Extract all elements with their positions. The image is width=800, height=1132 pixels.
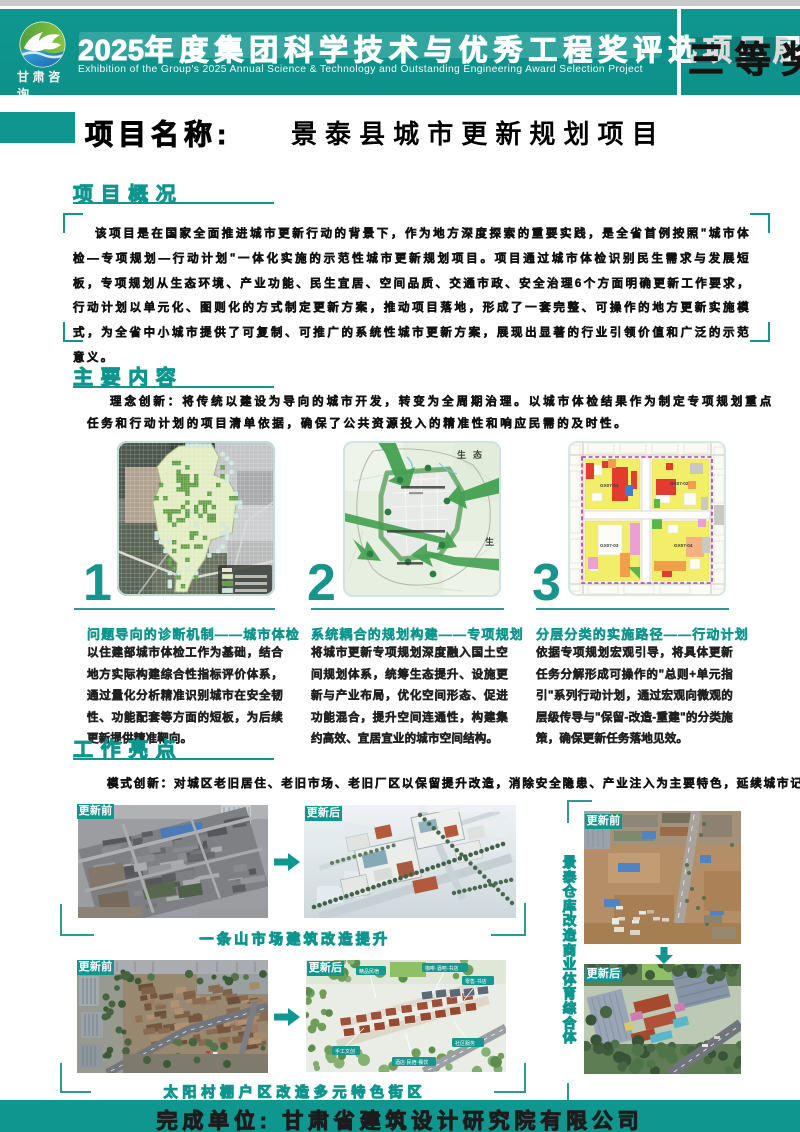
svg-text:咖啡·酒吧·书店: 咖啡·酒吧·书店 [425, 965, 458, 972]
svg-text:手工文创: 手工文创 [335, 1048, 355, 1055]
svg-text:酒店·民宿·餐饮: 酒店·民宿·餐饮 [395, 1059, 428, 1066]
svg-text:GX07-02: GX07-02 [670, 481, 689, 486]
svg-text:GX07-01: GX07-01 [600, 483, 619, 488]
svg-text:生态: 生态 [457, 449, 489, 460]
svg-text:GX07-04: GX07-04 [674, 543, 693, 548]
svg-text:社区服务: 社区服务 [455, 1040, 475, 1047]
svg-text:GX07-03: GX07-03 [600, 543, 619, 548]
svg-text:精品民宿: 精品民宿 [359, 968, 379, 975]
svg-text:生: 生 [485, 536, 494, 547]
svg-text:零售·书店: 零售·书店 [465, 978, 487, 985]
